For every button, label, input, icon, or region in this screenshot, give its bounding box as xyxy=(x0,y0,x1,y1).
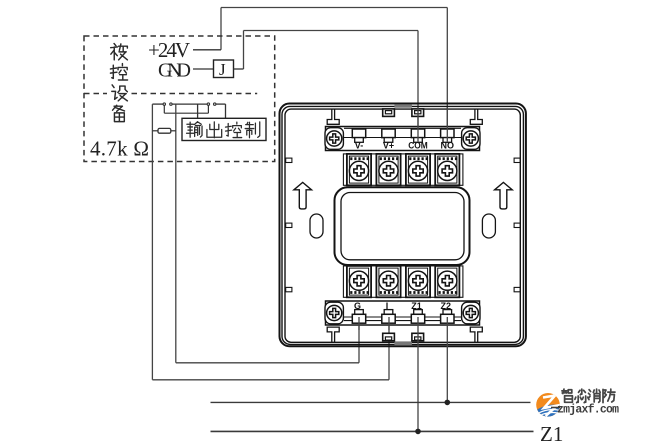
svg-text:J: J xyxy=(219,60,226,79)
svg-text:V+: V+ xyxy=(383,140,394,150)
svg-text:V-: V- xyxy=(355,140,364,150)
svg-text:zmjaxf.com: zmjaxf.com xyxy=(557,404,619,417)
svg-text:NO: NO xyxy=(441,140,455,150)
svg-text:Z1: Z1 xyxy=(540,422,563,444)
svg-text:+24V: +24V xyxy=(148,38,190,62)
svg-text:4.7k Ω: 4.7k Ω xyxy=(90,137,149,161)
svg-text:GND: GND xyxy=(158,60,191,82)
svg-text:COM: COM xyxy=(408,140,428,150)
